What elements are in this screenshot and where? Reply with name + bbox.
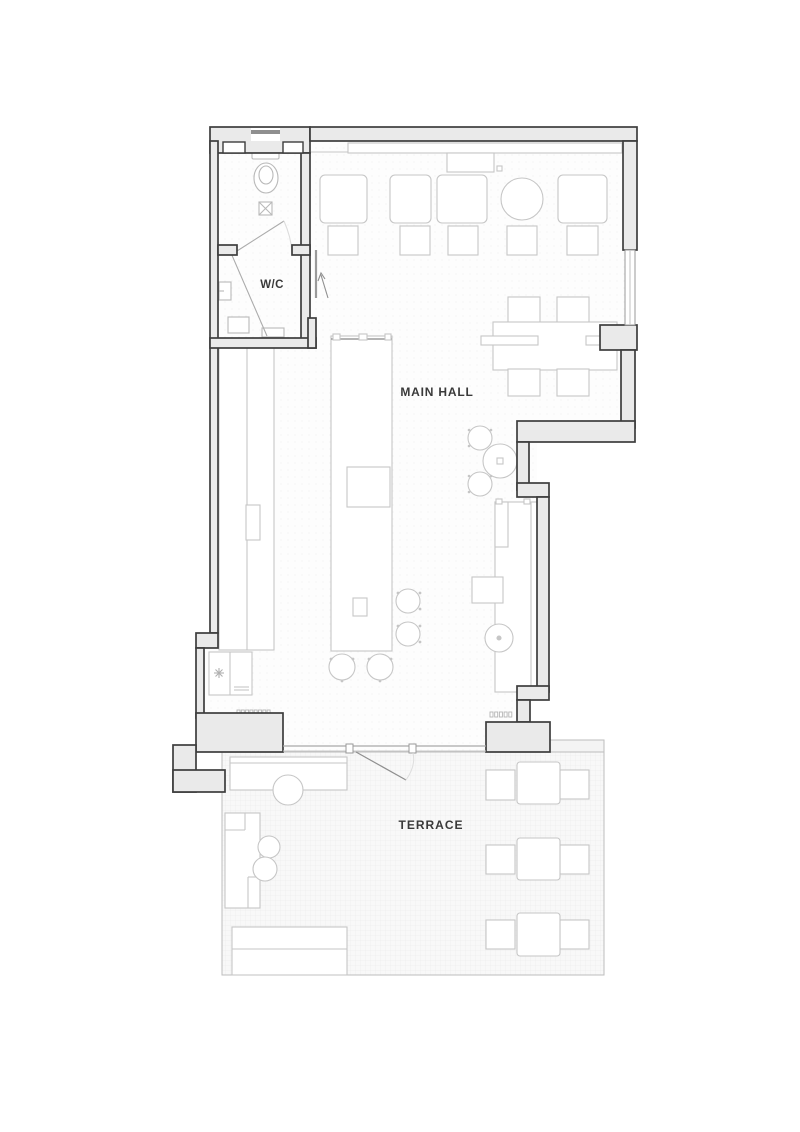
wall-step: [517, 700, 530, 722]
round-table: [258, 836, 280, 858]
table-base: [497, 458, 503, 464]
mullion: [346, 744, 353, 753]
stool: [468, 472, 492, 496]
wall-niche: [283, 142, 303, 153]
wall-west-lower: [196, 648, 204, 718]
wall-east-jog: [600, 325, 637, 350]
chair: [508, 369, 540, 396]
wall-table: [447, 153, 494, 172]
communal-table: [493, 322, 617, 370]
chair: [486, 845, 515, 874]
window-east: [625, 250, 635, 325]
counter-fixture: [495, 502, 508, 547]
stool: [396, 622, 420, 646]
counter-fixture: [246, 505, 260, 540]
stool: [329, 654, 355, 680]
counter-top-fixture: [496, 499, 502, 504]
wall-step: [517, 421, 635, 442]
chair: [328, 226, 358, 255]
compressor-icon: [214, 668, 224, 678]
wall-north: [310, 127, 637, 141]
stool: [367, 654, 393, 680]
wall-west: [210, 141, 218, 633]
banquette-bench: [348, 143, 622, 153]
table-base: [497, 636, 501, 640]
bar-sink: [353, 598, 367, 616]
wall-step: [173, 770, 225, 792]
chair: [567, 226, 598, 255]
wc-cabinet: [228, 317, 249, 333]
bar-top-fixture: [385, 334, 391, 340]
chair: [448, 226, 478, 255]
square-table: [472, 577, 503, 603]
chair: [507, 226, 537, 255]
wall-niche: [223, 142, 245, 153]
bench-strip: [481, 336, 538, 345]
cooler: [209, 652, 252, 695]
stool: [396, 589, 420, 613]
wc-partition-left: [218, 245, 237, 255]
wash-basin-icon: [219, 282, 231, 300]
bar-equipment: [347, 467, 390, 507]
small-fixture: [497, 166, 502, 171]
terrace-sofa: [225, 813, 260, 908]
wall-southeast-chunk: [486, 722, 550, 752]
chair: [508, 297, 540, 323]
wall-wc-south: [210, 338, 316, 348]
terrace-label: TERRACE: [398, 818, 463, 832]
wc-partition-right: [292, 245, 310, 255]
floor-plan-drawing: W/C MAIN HALL TERRACE: [0, 0, 800, 1132]
entry-door-gap: [251, 128, 280, 141]
main-hall-label: MAIN HALL: [400, 385, 473, 399]
wc-label: W/C: [260, 279, 284, 291]
bar-top-fixture: [333, 334, 340, 340]
round-dining-table: [501, 178, 543, 220]
terrace-table: [517, 762, 560, 804]
chair: [560, 920, 589, 949]
terrace-table: [517, 913, 560, 956]
mullion: [409, 744, 416, 753]
terrace-edge-strip: [550, 740, 604, 752]
round-table: [273, 775, 303, 805]
bar-top-fixture: [359, 334, 367, 340]
entry-door-leaf: [251, 130, 280, 134]
wall-step: [196, 633, 218, 648]
round-table: [253, 857, 277, 881]
chair: [557, 297, 589, 323]
dining-table: [558, 175, 607, 223]
chair: [560, 845, 589, 874]
wall-stub: [308, 318, 316, 348]
floor-drain-icon: [259, 202, 272, 215]
wall-east: [621, 350, 635, 428]
dining-table: [320, 175, 367, 223]
chair: [400, 226, 430, 255]
wall-step: [517, 483, 549, 497]
terrace-table: [517, 838, 560, 880]
counter-top-fixture: [524, 499, 530, 504]
floor-plan-page: W/C MAIN HALL TERRACE: [0, 0, 800, 1132]
terrace-planter: [232, 927, 347, 975]
chair: [557, 369, 589, 396]
wall-southwest-chunk: [196, 713, 283, 752]
chair: [486, 770, 515, 800]
chair: [560, 770, 589, 799]
wall-east-upper: [623, 141, 637, 250]
chair: [486, 920, 515, 949]
terrace-table-set: [486, 913, 589, 956]
stool: [468, 426, 492, 450]
dining-table: [437, 175, 487, 223]
wall-step: [517, 686, 549, 700]
dining-table: [390, 175, 431, 223]
toilet-icon: [252, 148, 279, 193]
wall-east-lower: [537, 497, 549, 692]
